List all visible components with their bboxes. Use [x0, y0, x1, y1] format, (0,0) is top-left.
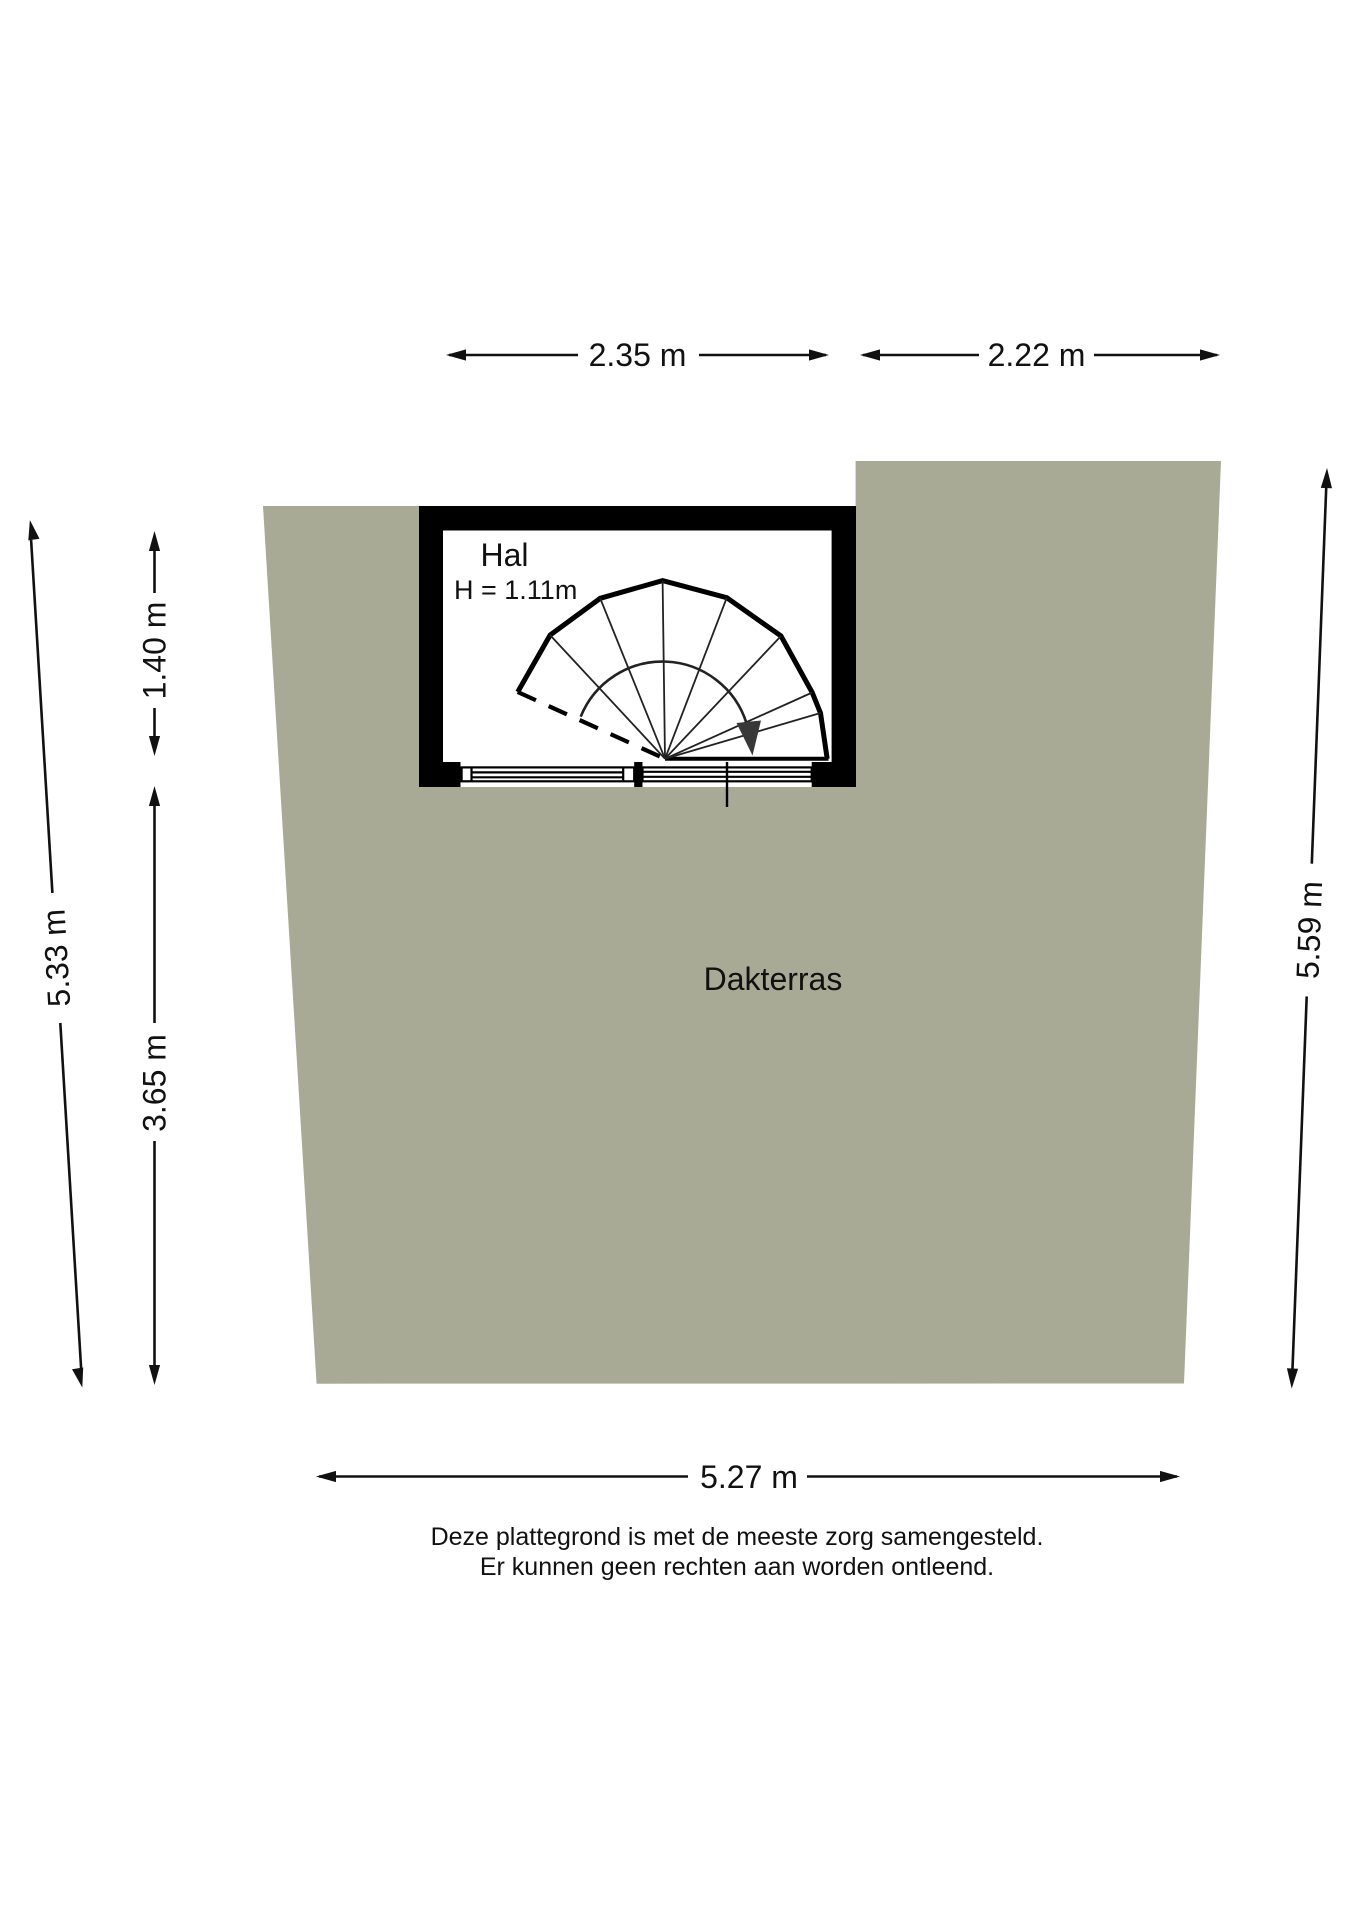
svg-text:1.40 m: 1.40 m — [137, 602, 173, 700]
svg-text:2.35 m: 2.35 m — [589, 337, 687, 373]
svg-text:Dakterras: Dakterras — [704, 961, 843, 997]
svg-text:Deze plattegrond is met de mee: Deze plattegrond is met de meeste zorg s… — [431, 1523, 1044, 1551]
svg-text:Hal: Hal — [481, 537, 529, 573]
svg-text:5.27 m: 5.27 m — [700, 1459, 798, 1495]
svg-text:5.59 m: 5.59 m — [1289, 880, 1329, 979]
svg-text:2.22 m: 2.22 m — [988, 337, 1086, 373]
svg-text:H = 1.11m: H = 1.11m — [454, 575, 577, 605]
svg-text:5.33 m: 5.33 m — [36, 908, 78, 1008]
svg-text:3.65 m: 3.65 m — [137, 1034, 173, 1132]
svg-text:Er kunnen geen rechten aan wor: Er kunnen geen rechten aan worden ontlee… — [480, 1553, 994, 1581]
